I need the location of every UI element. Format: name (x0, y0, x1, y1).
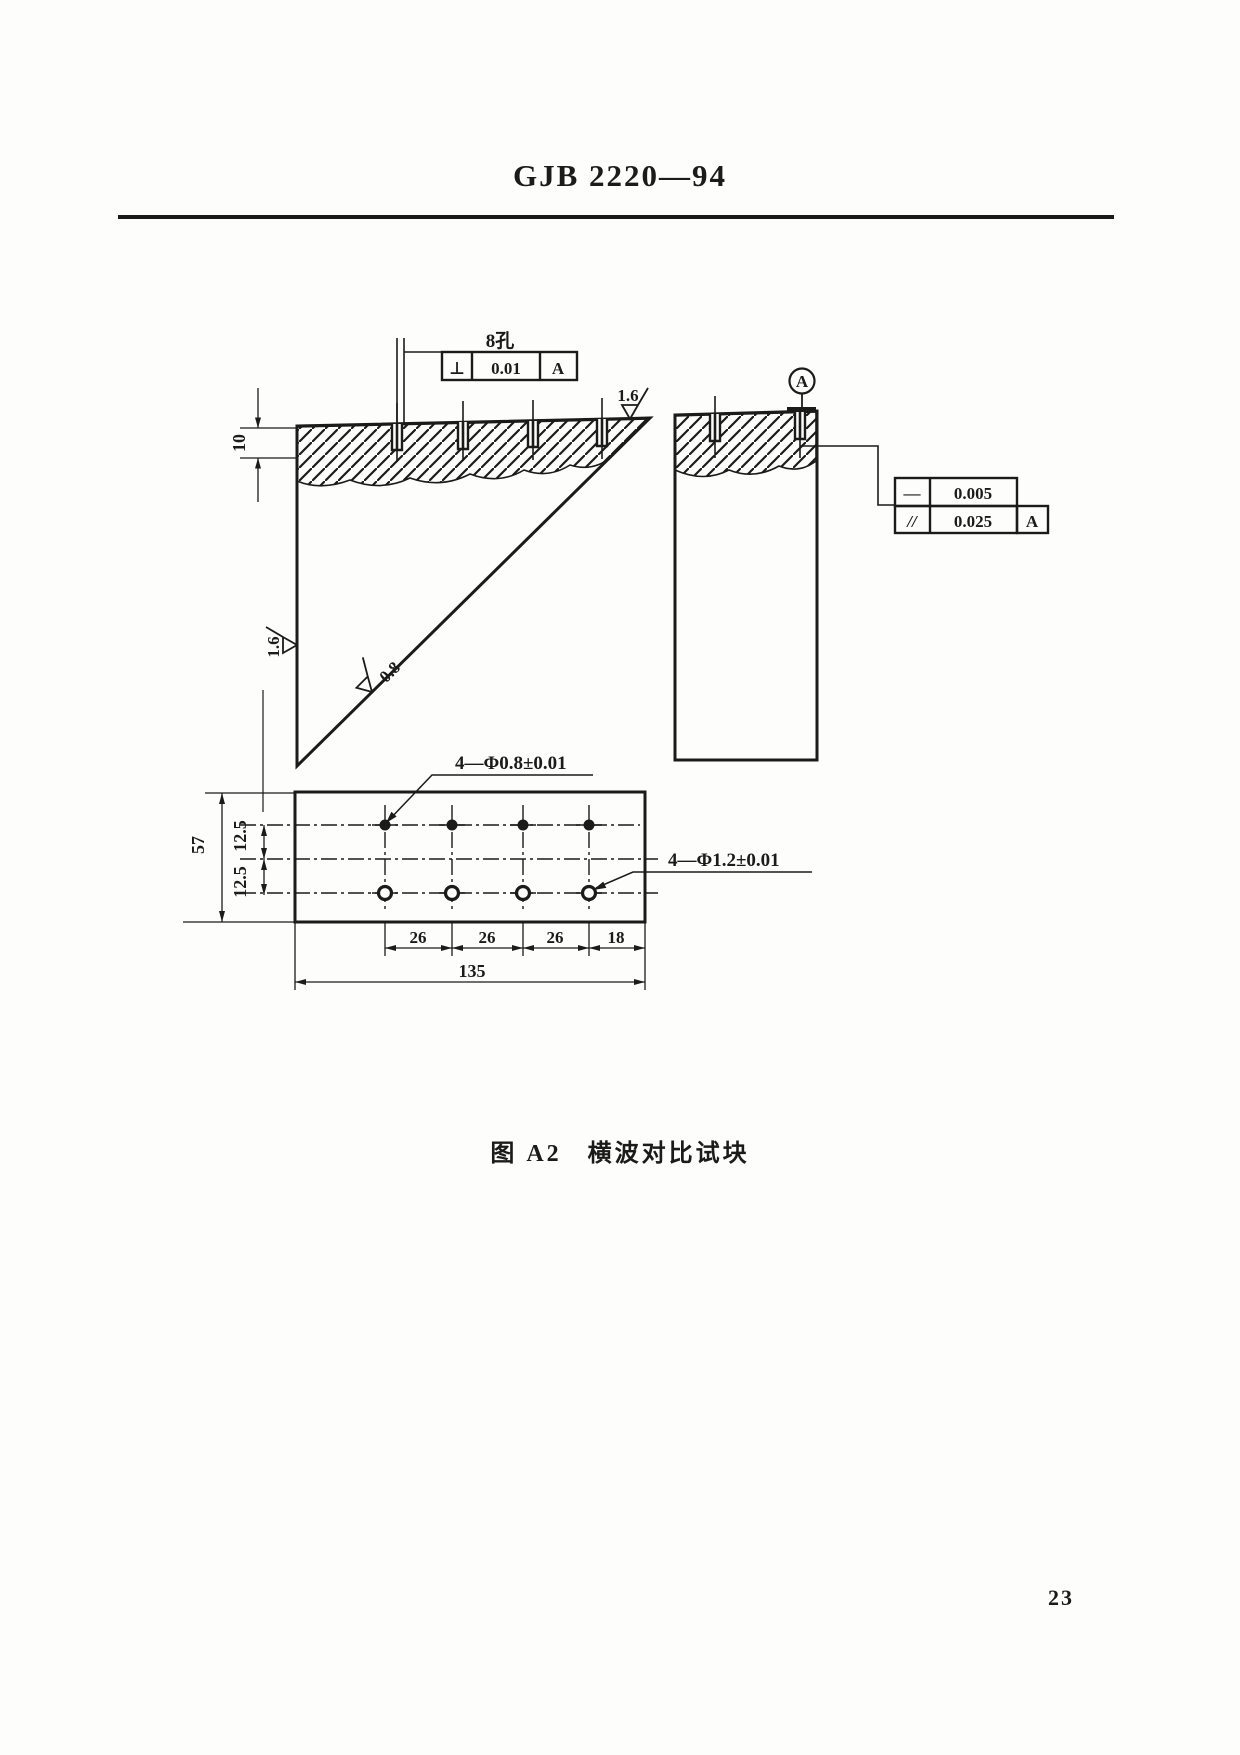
plan-view: 4—Φ0.8±0.01 4—Φ1.2±0.01 57 12.5 12.5 (183, 690, 812, 990)
dim-block-height: 57 (183, 793, 295, 922)
parallelism-datum: A (1026, 512, 1039, 531)
straightness-value: 0.005 (954, 484, 992, 503)
left-view: 8孔 ⊥ 0.01 A 1.6 1.6 0.8 10 (229, 330, 650, 766)
roughness-top-value: 1.6 (617, 386, 638, 405)
page-number: 23 (1048, 1585, 1074, 1611)
dim-26-3-text: 26 (547, 928, 564, 947)
dim-57-text: 57 (188, 836, 208, 854)
perpendicularity-datum: A (552, 359, 565, 378)
large-holes-text: 4—Φ1.2±0.01 (668, 850, 780, 871)
dim-18-text: 18 (608, 928, 625, 947)
parallelism-value: 0.025 (954, 512, 992, 531)
holes-count-label: 8孔 (486, 330, 515, 352)
dim-12-5-lower-text: 12.5 (230, 866, 250, 898)
small-holes-text: 4—Φ0.8±0.01 (455, 753, 567, 774)
figure-title: 横波对比试块 (588, 1141, 750, 1167)
dim-10-text: 10 (229, 434, 249, 452)
dimension-arrowheads (219, 418, 645, 986)
dim-26-1-text: 26 (410, 928, 427, 947)
dim-26-2-text: 26 (479, 928, 496, 947)
right-view: A — 0.005 // 0.025 A (675, 369, 1048, 761)
roughness-left-value: 1.6 (264, 636, 283, 657)
dim-135-text: 135 (459, 961, 486, 981)
dim-block-length: 135 (295, 961, 645, 982)
document-page: GJB 2220—94 (0, 0, 1240, 1755)
roughness-hypotenuse-value: 0.8 (376, 658, 404, 686)
figure-caption: 图 A2横波对比试块 (0, 1133, 1240, 1168)
plan-view-outline (295, 792, 645, 922)
straightness-symbol: — (903, 484, 922, 503)
large-holes-callout: 4—Φ1.2±0.01 (596, 850, 812, 888)
straightness-parallelism-frames: — 0.005 // 0.025 A (800, 446, 1048, 533)
roughness-hypotenuse: 0.8 (344, 644, 404, 704)
datum-a-label: A (796, 372, 809, 391)
perpendicularity-value: 0.01 (491, 359, 521, 378)
small-holes-callout: 4—Φ0.8±0.01 (388, 753, 593, 821)
figure-label: 图 A2 (490, 1141, 561, 1167)
roughness-top-edge: 1.6 (617, 386, 648, 419)
figure-a2-drawing: 8孔 ⊥ 0.01 A 1.6 1.6 0.8 10 (0, 0, 1240, 1755)
perpendicularity-frame: 8孔 ⊥ 0.01 A (397, 330, 577, 423)
perpendicularity-symbol: ⊥ (449, 359, 465, 378)
dim-hole-depth: 10 (229, 388, 296, 502)
datum-a-symbol: A (787, 369, 816, 410)
parallelism-symbol: // (905, 512, 919, 531)
dim-12-5-upper-text: 12.5 (230, 820, 250, 852)
roughness-left-edge: 1.6 (264, 627, 297, 658)
